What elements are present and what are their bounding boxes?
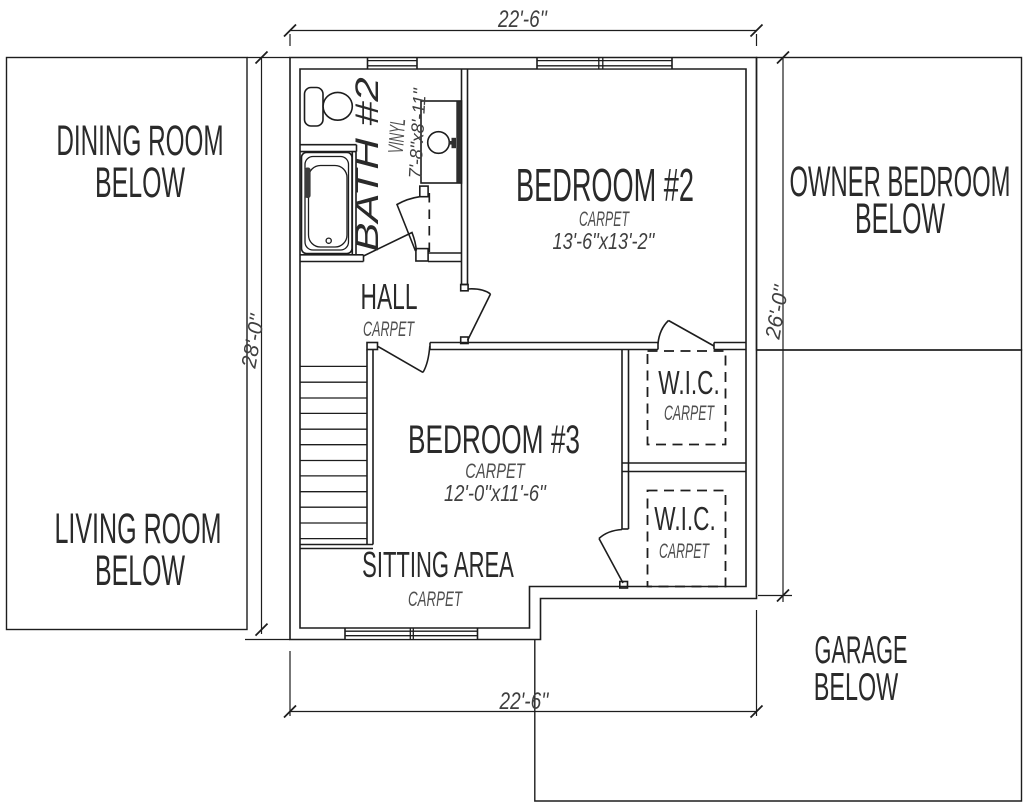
svg-text:12'-0''x11'-6'': 12'-0''x11'-6'' <box>444 481 547 506</box>
svg-text:LIVING ROOM: LIVING ROOM <box>54 505 221 553</box>
svg-text:BELOW: BELOW <box>814 665 899 709</box>
svg-text:CARPET: CARPET <box>579 206 630 230</box>
svg-text:HALL: HALL <box>361 278 418 317</box>
svg-text:CARPET: CARPET <box>659 538 710 562</box>
svg-text:26'-0'': 26'-0'' <box>761 283 793 342</box>
svg-text:BEDROOM #3: BEDROOM #3 <box>408 418 580 463</box>
svg-text:7'-8''x8'-11'': 7'-8''x8'-11'' <box>405 87 430 179</box>
svg-text:DINING ROOM: DINING ROOM <box>56 117 223 165</box>
svg-text:13'-6''x13'-2'': 13'-6''x13'-2'' <box>553 229 656 255</box>
svg-text:CARPET: CARPET <box>363 317 415 341</box>
svg-text:BELOW: BELOW <box>95 159 186 207</box>
svg-text:BELOW: BELOW <box>95 547 186 595</box>
svg-text:W.I.C.: W.I.C. <box>658 364 720 401</box>
svg-text:CARPET: CARPET <box>408 587 463 611</box>
svg-text:22'-6'': 22'-6'' <box>499 687 550 715</box>
svg-text:BELOW: BELOW <box>855 195 946 243</box>
svg-text:28'-0'': 28'-0'' <box>237 312 269 371</box>
svg-text:CARPET: CARPET <box>664 400 715 424</box>
svg-text:22'-6'': 22'-6'' <box>497 5 548 33</box>
svg-text:W.I.C.: W.I.C. <box>654 500 716 537</box>
svg-text:CARPET: CARPET <box>465 459 526 482</box>
svg-text:SITTING AREA: SITTING AREA <box>362 546 514 586</box>
svg-text:BEDROOM #2: BEDROOM #2 <box>516 161 694 212</box>
svg-text:BATH #2: BATH #2 <box>350 77 386 252</box>
